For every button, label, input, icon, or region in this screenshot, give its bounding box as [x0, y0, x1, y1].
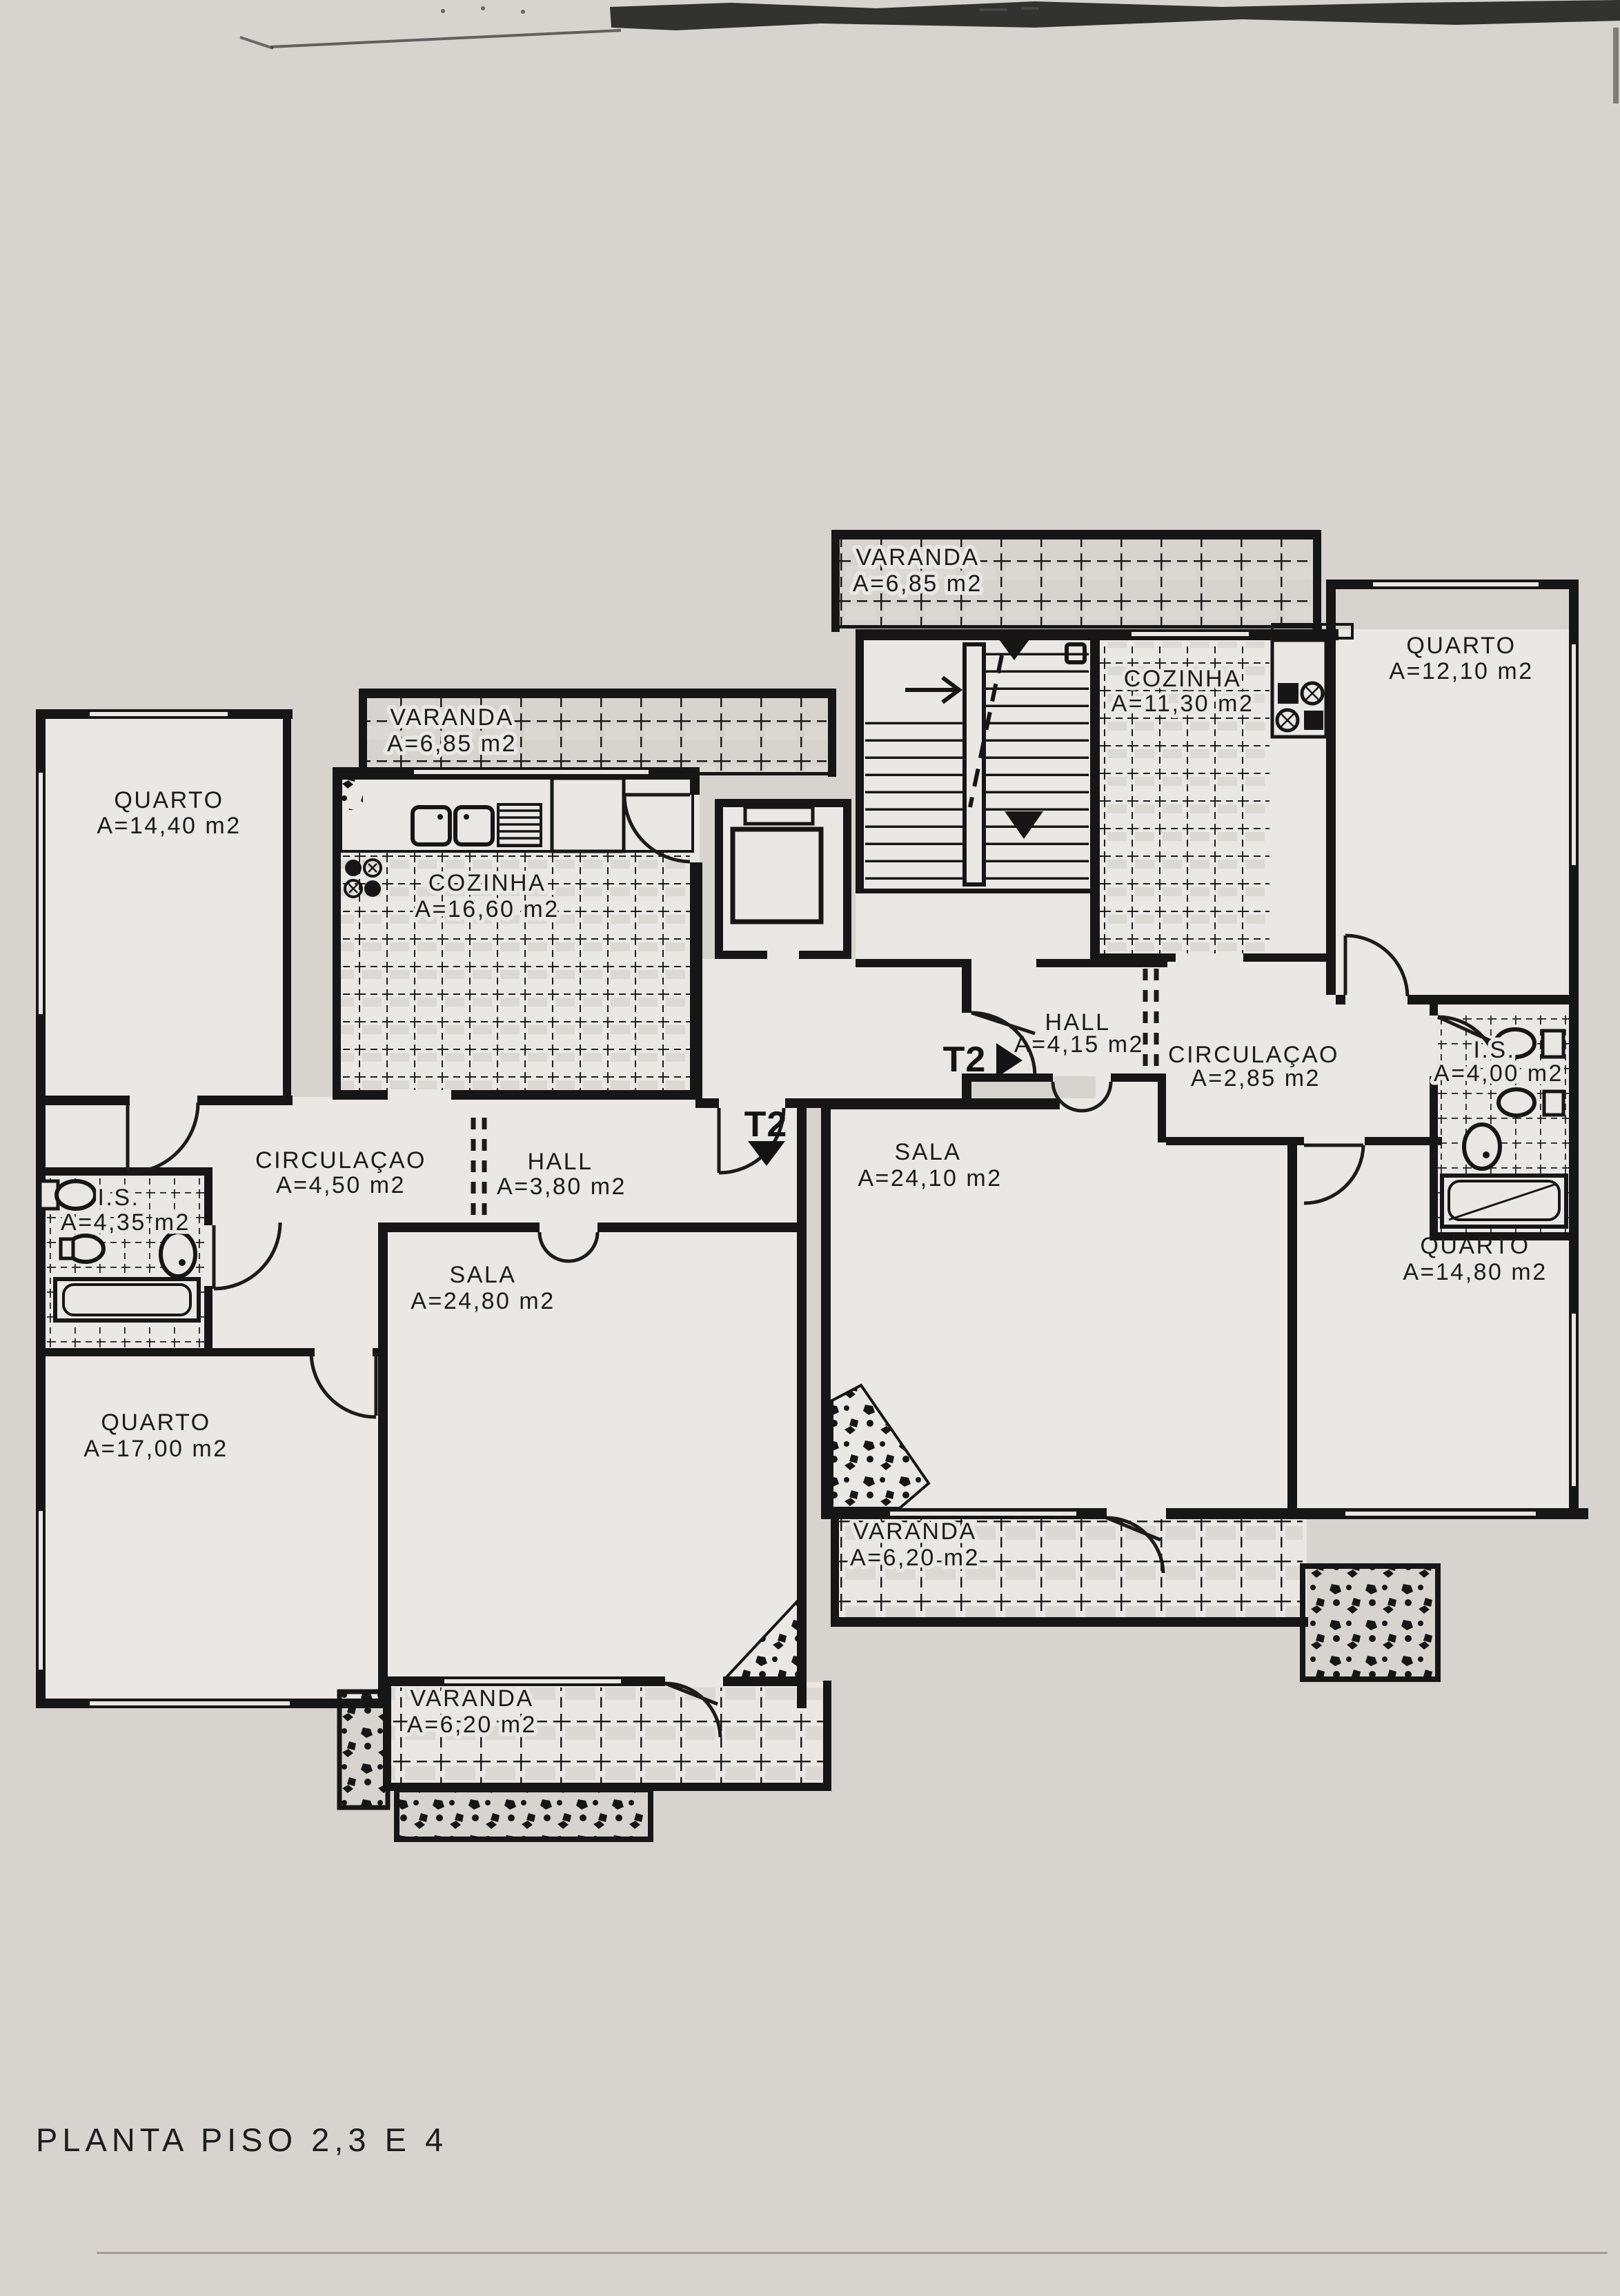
- floor-plan-canvas: QUARTO A=14,40 m2 VARANDA A=6,85 m2 COZI…: [0, 0, 1620, 2296]
- label-quarto-1700-area: A=17,00 m2: [83, 1436, 228, 1462]
- drainer: [498, 804, 541, 846]
- label-quarto-1440-name: QUARTO: [114, 787, 224, 813]
- label-is-400-area: A=4,00 m2: [1434, 1060, 1563, 1087]
- label-quarto-1480-name: QUARTO: [1420, 1233, 1530, 1259]
- label-circulacao-285-area: A=2,85 m2: [1191, 1065, 1321, 1091]
- label-quarto-1700-name: QUARTO: [101, 1409, 210, 1436]
- label-cozinha-1130-name: COZINHA: [1124, 666, 1242, 692]
- label-cozinha-1660-area: A=16,60 m2: [415, 896, 559, 922]
- label-sala-2480-name: SALA: [450, 1262, 517, 1288]
- label-varanda-685R-area: A=6,85 m2: [853, 571, 982, 597]
- label-varanda-620R-name: VARANDA: [853, 1518, 976, 1545]
- label-hall-380-area: A=3,80 m2: [497, 1174, 626, 1200]
- label-is-435-area: A=4,35 m2: [61, 1209, 190, 1236]
- label-hall-415-area: A=4,15 m2: [1014, 1031, 1144, 1058]
- label-varanda-685L-area: A=6,85 m2: [387, 731, 517, 757]
- marker-t2-left-label: T2: [744, 1105, 788, 1145]
- label-sala-2410-name: SALA: [895, 1139, 962, 1165]
- counter: [552, 778, 624, 851]
- plan-title: PLANTA PISO 2,3 E 4: [36, 2121, 448, 2158]
- marker-t2-right-label: T2: [943, 1040, 987, 1080]
- label-quarto-1480-area: A=14,80 m2: [1403, 1259, 1547, 1285]
- label-varanda-685L-name: VARANDA: [390, 704, 513, 731]
- label-sala-2410-area: A=24,10 m2: [858, 1165, 1002, 1191]
- label-quarto-1210-area: A=12,10 m2: [1389, 658, 1533, 684]
- label-varanda-685R-name: VARANDA: [856, 544, 979, 571]
- toilet: [57, 1181, 95, 1209]
- scan-edge-bottom: [97, 2252, 1608, 2254]
- label-is-435-name: I.S.: [97, 1185, 139, 1211]
- label-quarto-1440-area: A=14,40 m2: [97, 813, 241, 839]
- label-sala-2480-area: A=24,80 m2: [411, 1288, 555, 1314]
- washbasin: [1464, 1125, 1500, 1169]
- label-varanda-620L-name: VARANDA: [410, 1685, 533, 1712]
- label-circulacao-450-name: CIRCULAÇAO: [255, 1147, 426, 1174]
- washbasin: [161, 1232, 195, 1276]
- label-hall-380-name: HALL: [527, 1149, 593, 1175]
- scan-edge-right: [1613, 28, 1619, 103]
- sink-left: [413, 807, 450, 844]
- label-varanda-620R-area: A=6,20 m2: [850, 1545, 980, 1571]
- toilet-tank: [1543, 1031, 1563, 1057]
- sink-right: [455, 807, 493, 844]
- label-cozinha-1130-area: A=11,30 m2: [1112, 691, 1254, 717]
- label-varanda-620L-area: A=6,20 m2: [407, 1712, 537, 1738]
- label-cozinha-1660-name: COZINHA: [428, 870, 546, 896]
- bidet: [1499, 1089, 1534, 1116]
- label-quarto-1210-name: QUARTO: [1406, 633, 1516, 659]
- label-circulacao-450-area: A=4,50 m2: [276, 1172, 406, 1198]
- label-circulacao-285-name: CIRCULAÇAO: [1168, 1042, 1339, 1068]
- label-is-400-name: I.S.: [1473, 1037, 1515, 1063]
